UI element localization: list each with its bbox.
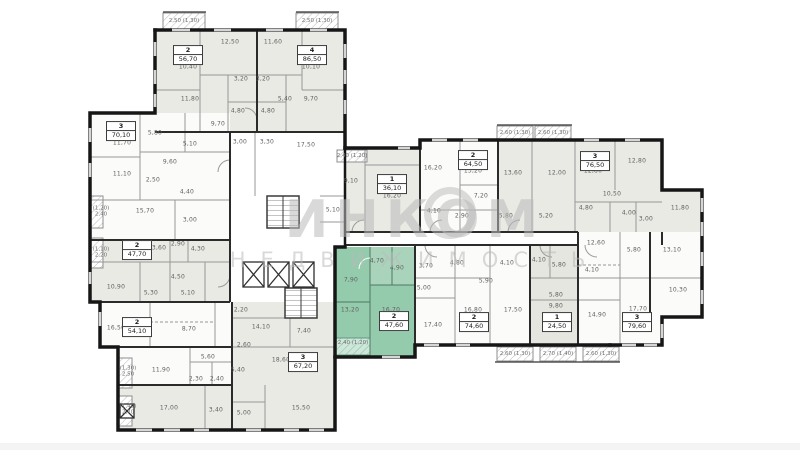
room-area-label: 4,80 bbox=[231, 108, 245, 115]
room-area-label: 5,40 bbox=[231, 367, 245, 374]
room-area-label: 3,20 bbox=[234, 76, 248, 83]
room-area-label: 4,70 bbox=[370, 258, 384, 265]
apartment-rooms-count: 2 bbox=[459, 151, 487, 160]
apartment-total-area: 67,20 bbox=[289, 363, 317, 371]
room-area-label: 5,30 bbox=[144, 290, 158, 297]
apartment-total-area: 47,60 bbox=[380, 322, 408, 330]
room-area-label: 17,50 bbox=[297, 142, 315, 149]
room-area-label: 8,70 bbox=[182, 326, 196, 333]
apartment-total-area: 86,50 bbox=[298, 56, 326, 64]
apartment-total-area: 24,50 bbox=[543, 323, 571, 331]
room-area-label: 5,10 bbox=[183, 141, 197, 148]
room-area-label: 4,10 bbox=[532, 257, 546, 264]
apartment-label-1-36.10[interactable]: 136,10 bbox=[377, 174, 407, 194]
balcony-dimension-label: 2,60 (1,30) bbox=[586, 351, 617, 357]
balcony-dimension-label: 2,60 (1,30) bbox=[500, 351, 531, 357]
room-area-label: 11,90 bbox=[152, 367, 170, 374]
room-area-label: 17,00 bbox=[160, 405, 178, 412]
apartment-label-3-70.10[interactable]: 370,10 bbox=[106, 121, 136, 141]
apartment-label-2-54.10[interactable]: 254,10 bbox=[122, 317, 152, 337]
room-area-label: 11,60 bbox=[264, 39, 282, 46]
apartment-label-2-64.50[interactable]: 264,50 bbox=[458, 150, 488, 170]
apartment-rooms-count: 1 bbox=[378, 175, 406, 184]
apartment-total-area: 70,10 bbox=[107, 132, 135, 140]
room-area-label: 9,80 bbox=[549, 303, 563, 310]
room-area-label: 14,10 bbox=[252, 324, 270, 331]
room-area-label: 11,10 bbox=[113, 171, 131, 178]
room-area-label: 4,40 bbox=[180, 189, 194, 196]
room-area-label: 4,10 bbox=[585, 267, 599, 274]
room-area-label: 7,40 bbox=[297, 328, 311, 335]
room-area-label: 12,50 bbox=[221, 39, 239, 46]
apartment-total-area: 56,70 bbox=[174, 56, 202, 64]
apartment-total-area: 36,10 bbox=[378, 185, 406, 193]
room-area-label: 5,80 bbox=[148, 130, 162, 137]
room-area-label: 5,80 bbox=[499, 213, 513, 220]
room-area-label: 4,10 bbox=[500, 260, 514, 267]
room-area-label: 10,50 bbox=[603, 191, 621, 198]
room-area-label: 5,00 bbox=[237, 410, 251, 417]
room-area-label: 10,90 bbox=[107, 284, 125, 291]
apartment-label-3-67.20[interactable]: 367,20 bbox=[288, 352, 318, 372]
apartment-total-area: 64,50 bbox=[459, 161, 487, 169]
apartment-total-area: 76,50 bbox=[581, 162, 609, 170]
room-area-label: 4,10 bbox=[427, 208, 441, 215]
room-area-label: 4,30 bbox=[191, 246, 205, 253]
room-area-label: 5,90 bbox=[479, 278, 493, 285]
room-area-label: 3,00 bbox=[639, 216, 653, 223]
floor-plan-page: 10,4012,5011,6010,1011,803,203,205,409,7… bbox=[0, 0, 800, 450]
room-area-label: 4,00 bbox=[622, 210, 636, 217]
room-area-label: 13,10 bbox=[663, 247, 681, 254]
room-area-label: 3,70 bbox=[419, 263, 433, 270]
apartment-rooms-count: 2 bbox=[123, 241, 151, 250]
room-area-label: 3,00 bbox=[183, 217, 197, 224]
plan-labels-layer: 10,4012,5011,6010,1011,803,203,205,409,7… bbox=[0, 0, 800, 450]
apartment-label-2-47.60-selected[interactable]: 247,60 bbox=[379, 311, 409, 331]
room-area-label: 5,10 bbox=[326, 207, 340, 214]
room-area-label: 9,70 bbox=[304, 96, 318, 103]
apartment-label-2-47.70[interactable]: 247,70 bbox=[122, 240, 152, 260]
room-area-label: 5,80 bbox=[552, 262, 566, 269]
room-area-label: 9,10 bbox=[344, 178, 358, 185]
apartment-label-3-79.60[interactable]: 379,60 bbox=[622, 312, 652, 332]
room-area-label: 14,90 bbox=[588, 312, 606, 319]
room-area-label: 11,80 bbox=[671, 205, 689, 212]
room-area-label: 4,80 bbox=[450, 260, 464, 267]
balcony-dimension-label: 2,60 (1,30) bbox=[500, 130, 531, 136]
apartment-label-3-76.50[interactable]: 376,50 bbox=[580, 151, 610, 171]
room-area-label: 12,60 bbox=[587, 240, 605, 247]
apartment-label-1-24.50[interactable]: 124,50 bbox=[542, 312, 572, 332]
room-area-label: 13,60 bbox=[504, 170, 522, 177]
room-area-label: 2,40 bbox=[210, 376, 224, 383]
room-area-label: 2,60 bbox=[237, 342, 251, 349]
room-area-label: 5,00 bbox=[417, 285, 431, 292]
balcony-dimension-label: 2,50 (1,30) bbox=[302, 18, 333, 24]
apartment-rooms-count: 3 bbox=[623, 313, 651, 322]
balcony-dimension-label: 2,60 (1,30) bbox=[538, 130, 569, 136]
apartment-rooms-count: 3 bbox=[107, 122, 135, 131]
balcony-dimension-label: 2,50 (1,30) bbox=[169, 18, 200, 24]
apartment-rooms-count: 2 bbox=[174, 46, 202, 55]
apartment-total-area: 74,60 bbox=[460, 323, 488, 331]
room-area-label: 4,50 bbox=[171, 274, 185, 281]
room-area-label: 11,80 bbox=[181, 96, 199, 103]
room-area-label: 13,20 bbox=[341, 307, 359, 314]
room-area-label: 5,80 bbox=[549, 292, 563, 299]
apartment-rooms-count: 2 bbox=[123, 318, 151, 327]
room-area-label: 9,70 bbox=[211, 121, 225, 128]
room-area-label: 5,10 bbox=[181, 290, 195, 297]
room-area-label: 16,20 bbox=[424, 165, 442, 172]
room-area-label: 10,30 bbox=[669, 287, 687, 294]
room-area-label: 12,80 bbox=[628, 158, 646, 165]
apartment-label-4-86.50[interactable]: 486,50 bbox=[297, 45, 327, 65]
room-area-label: 5,40 bbox=[278, 96, 292, 103]
room-area-label: 2,90 bbox=[455, 213, 469, 220]
balcony-dimension-label: (1,40) 2,70 bbox=[120, 404, 137, 417]
room-area-label: 2,90 bbox=[171, 241, 185, 248]
apartment-rooms-count: 3 bbox=[581, 152, 609, 161]
room-area-label: 3,20 bbox=[256, 76, 270, 83]
apartment-rooms-count: 2 bbox=[460, 313, 488, 322]
room-area-label: 17,50 bbox=[504, 307, 522, 314]
apartment-label-2-56.70[interactable]: 256,70 bbox=[173, 45, 203, 65]
room-area-label: 15,70 bbox=[136, 208, 154, 215]
room-area-label: 9,60 bbox=[163, 159, 177, 166]
balcony-dimension-label: 2,40 (1,20) bbox=[338, 340, 369, 346]
balcony-dimension-label: (1,10) 2,20 bbox=[93, 247, 110, 260]
apartment-rooms-count: 2 bbox=[380, 312, 408, 321]
room-area-label: 15,50 bbox=[292, 405, 310, 412]
balcony-dimension-label: 2,70 (1,40) bbox=[543, 351, 574, 357]
apartment-total-area: 79,60 bbox=[623, 323, 651, 331]
apartment-rooms-count: 3 bbox=[289, 353, 317, 362]
balcony-dimension-label: 2,40 (1,20) bbox=[337, 153, 368, 159]
room-area-label: 12,00 bbox=[548, 170, 566, 177]
room-area-label: 3,30 bbox=[260, 139, 274, 146]
room-area-label: 7,90 bbox=[344, 277, 358, 284]
room-area-label: 4,80 bbox=[579, 205, 593, 212]
room-area-label: 2,30 bbox=[189, 376, 203, 383]
room-area-label: 4,90 bbox=[390, 265, 404, 272]
room-area-label: 5,20 bbox=[539, 213, 553, 220]
room-area-label: 5,80 bbox=[627, 247, 641, 254]
balcony-dimension-label: (1,20) 2,40 bbox=[93, 206, 110, 219]
apartment-label-2-74.60[interactable]: 274,60 bbox=[459, 312, 489, 332]
room-area-label: 5,60 bbox=[201, 354, 215, 361]
room-area-label: 3,40 bbox=[209, 407, 223, 414]
room-area-label: 2,50 bbox=[146, 177, 160, 184]
room-area-label: 17,40 bbox=[424, 322, 442, 329]
room-area-label: 4,80 bbox=[261, 108, 275, 115]
room-area-label: 3,00 bbox=[233, 139, 247, 146]
room-area-label: 2,20 bbox=[234, 307, 248, 314]
apartment-total-area: 54,10 bbox=[123, 328, 151, 336]
apartment-rooms-count: 1 bbox=[543, 313, 571, 322]
apartment-total-area: 47,70 bbox=[123, 251, 151, 259]
room-area-label: 7,20 bbox=[474, 193, 488, 200]
apartment-rooms-count: 4 bbox=[298, 46, 326, 55]
balcony-dimension-label: (1,30) 2,50 bbox=[120, 366, 137, 379]
